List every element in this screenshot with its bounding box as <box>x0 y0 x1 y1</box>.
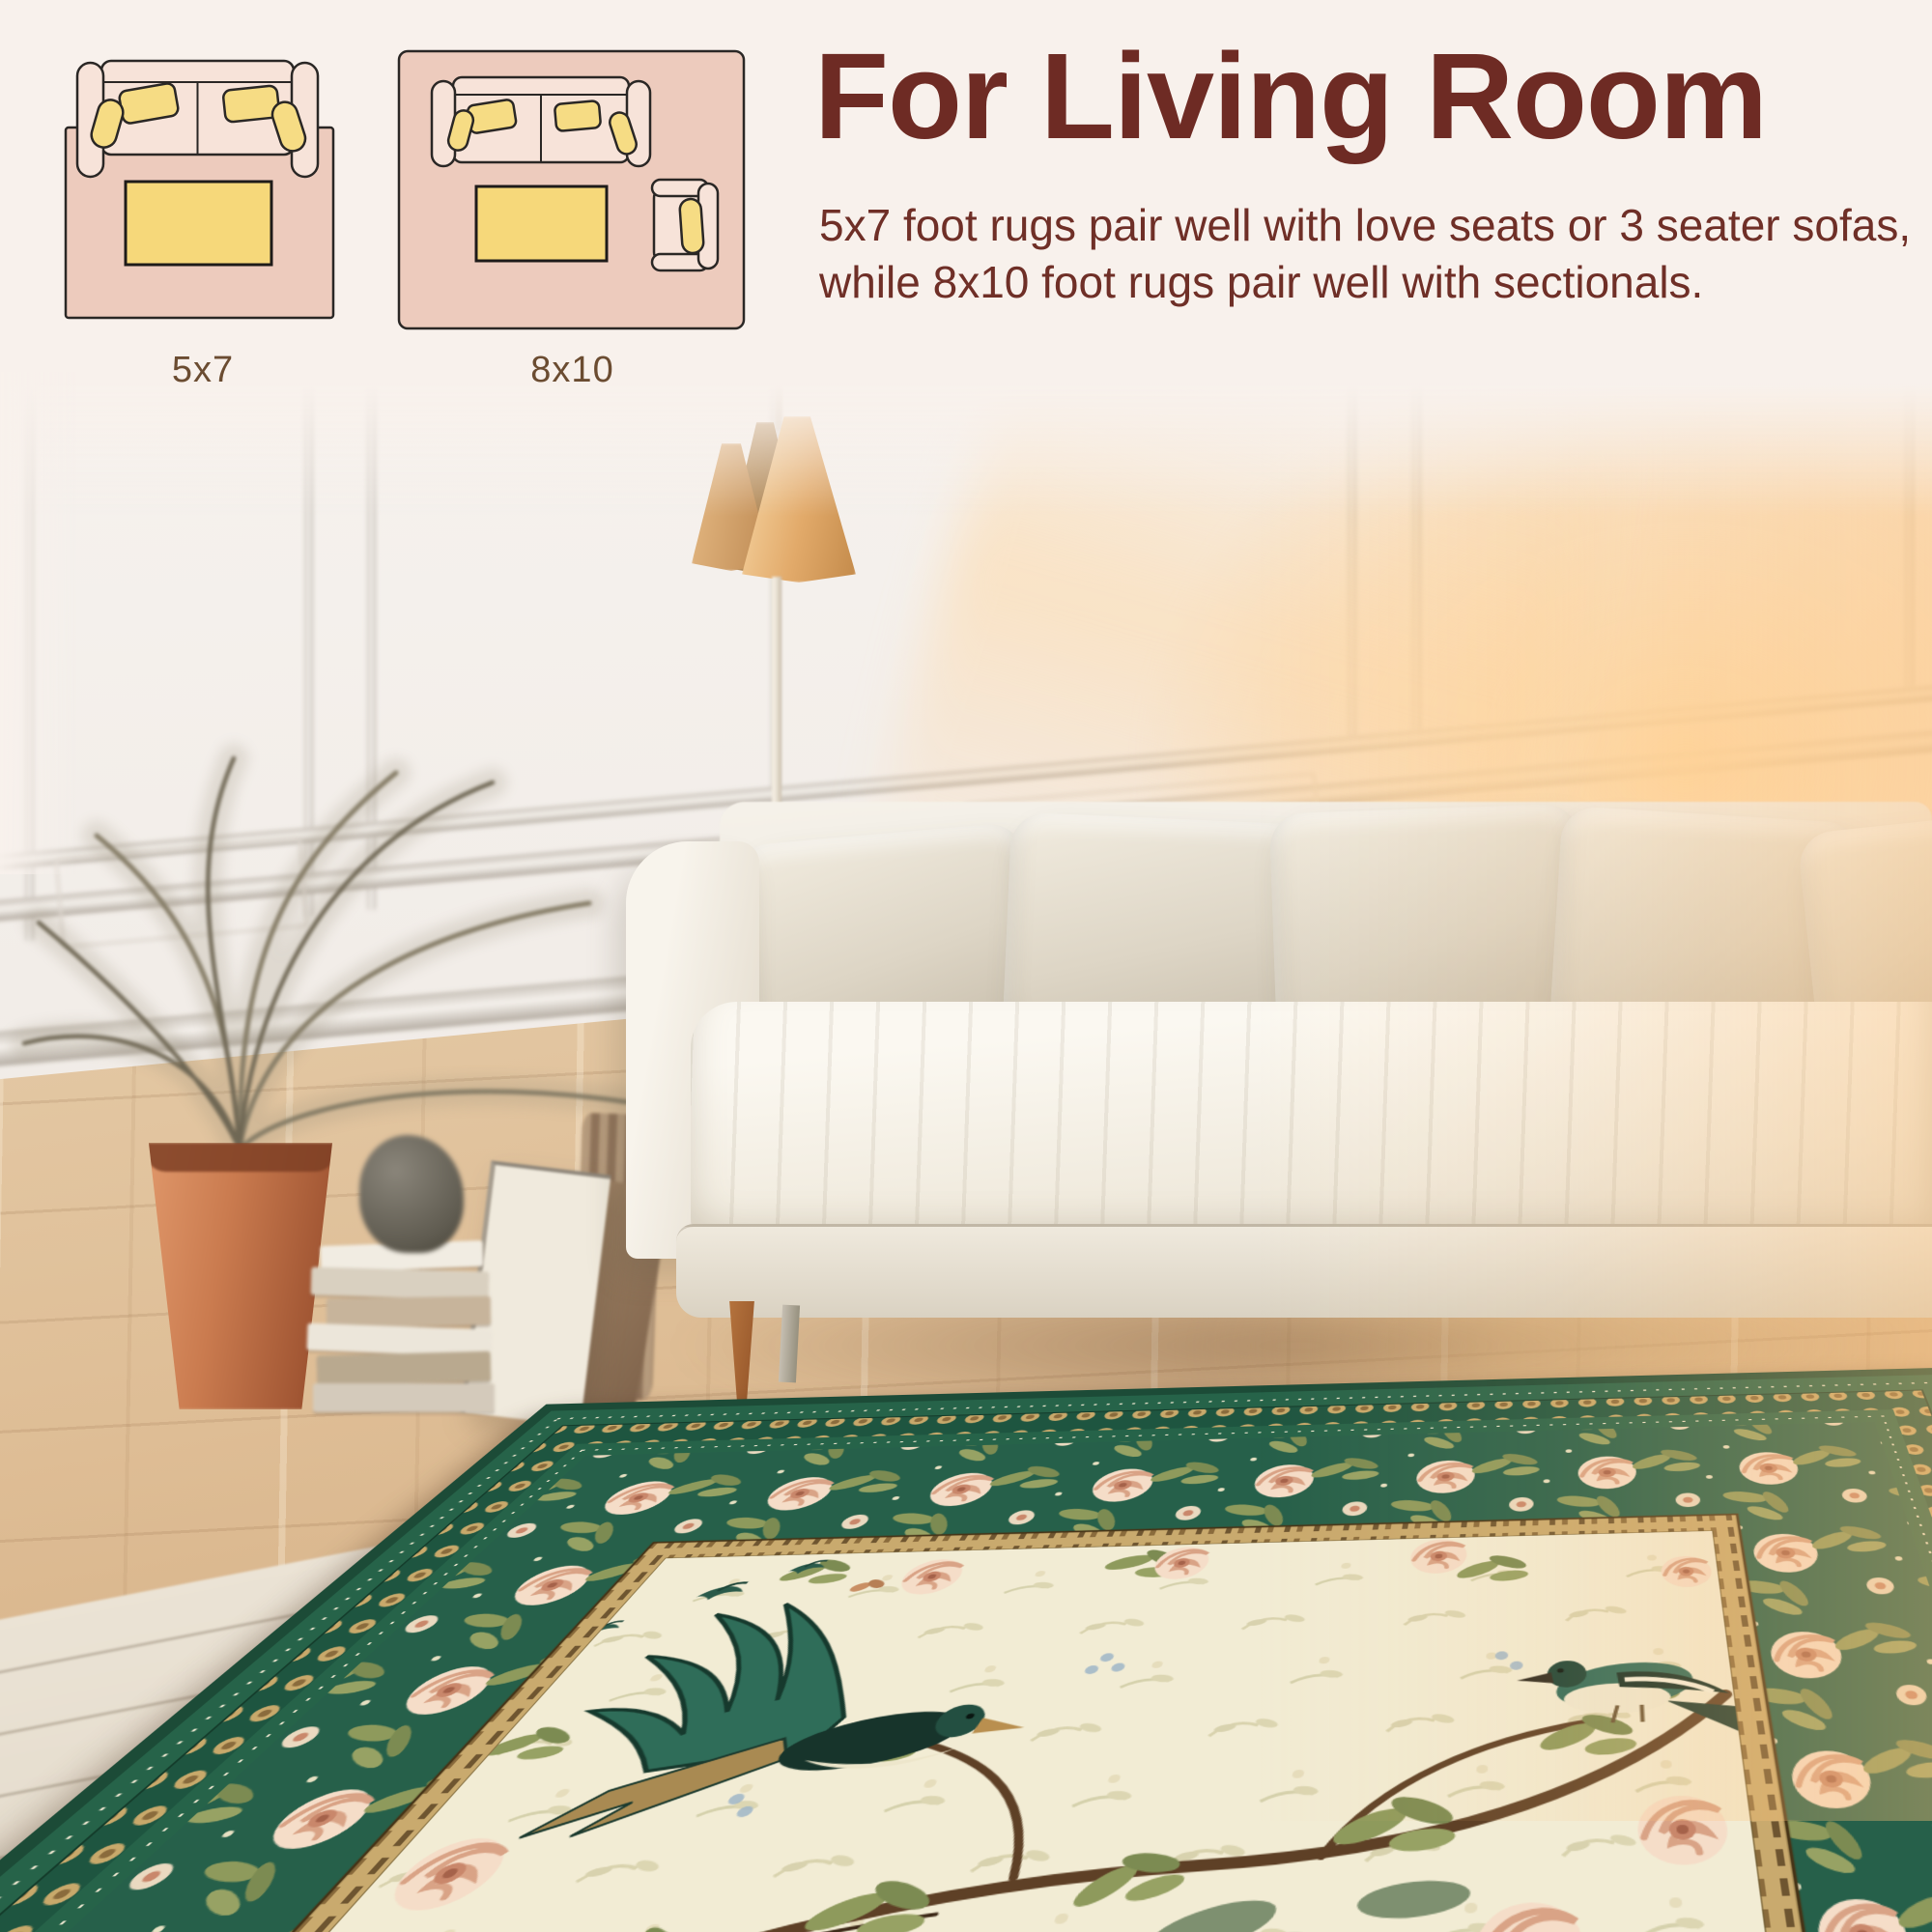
living-room-photo <box>0 372 1932 1932</box>
sofa-armchair-layout-icon <box>391 39 753 343</box>
page-title: For Living Room <box>814 33 1925 160</box>
book-stack <box>307 1243 500 1422</box>
diagram-coffee-table <box>126 182 271 265</box>
pot-rim <box>145 1143 336 1172</box>
header-description: 5x7 foot rugs pair well with love seats … <box>819 197 1932 311</box>
diagram-pillow <box>679 198 704 253</box>
book <box>317 1351 492 1386</box>
photo-left-fade <box>0 372 77 874</box>
diagram-pillow <box>554 100 601 131</box>
diagram-pillow <box>467 99 517 133</box>
header-section: 5x7 <box>0 0 1932 386</box>
diagram-label-5x7: 5x7 <box>58 350 348 391</box>
loveseat-layout-icon <box>58 43 348 333</box>
diagram-armchair <box>652 180 718 270</box>
diagram-coffee-table <box>476 186 607 261</box>
product-infographic: 5x7 <box>0 0 1932 1932</box>
book <box>313 1383 495 1412</box>
diagram-pillow <box>222 85 279 123</box>
book <box>327 1296 491 1328</box>
rug-size-diagram-8x10: 8x10 <box>391 39 753 391</box>
rug-size-diagram-5x7: 5x7 <box>58 43 348 391</box>
book <box>311 1267 490 1300</box>
warm-light-wash <box>1256 372 1932 1821</box>
diagram-label-8x10: 8x10 <box>391 350 753 391</box>
photo-top-fade <box>0 372 1932 517</box>
diagram-sofa <box>432 77 650 166</box>
